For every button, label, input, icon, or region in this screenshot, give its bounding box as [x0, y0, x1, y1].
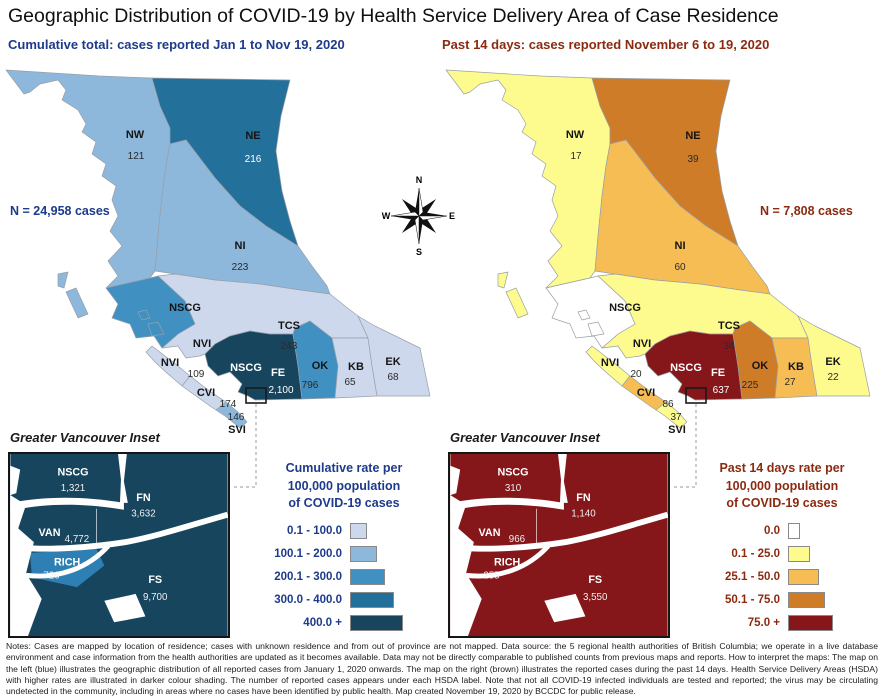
legend-swatch: [350, 523, 406, 539]
legend-swatch: [788, 523, 844, 539]
compass-rose-icon: N E S W: [381, 174, 457, 258]
legend-item-label: 50.1 - 75.0: [700, 594, 788, 606]
legend-swatch: [788, 615, 844, 631]
inset-label-van: VAN: [39, 527, 61, 539]
inset-title-past14: Greater Vancouver Inset: [450, 430, 600, 445]
legend-item: 0.1 - 25.0: [700, 547, 864, 562]
inset-label-van: VAN: [479, 527, 501, 539]
value-tcs: 34: [723, 341, 735, 352]
value-kb: 65: [344, 377, 356, 388]
legend-item-label: 75.0 +: [700, 617, 788, 629]
region-haida-gwaii: [58, 272, 88, 318]
label-nvi: NVI: [601, 357, 619, 369]
label-fe: FE: [711, 367, 725, 379]
label-nscg: NSCG: [230, 362, 262, 374]
label-ok: OK: [752, 360, 769, 372]
legend-item-label: 300.0 - 400.0: [262, 594, 350, 606]
page: Geographic Distribution of COVID-19 by H…: [0, 0, 884, 696]
legend-swatch: [350, 569, 406, 585]
legend-item-label: 0.1 - 100.0: [262, 525, 350, 537]
label-ni: NI: [235, 240, 246, 252]
inset-label-fn: FN: [136, 492, 151, 504]
inset-label-fs: FS: [588, 574, 602, 586]
legend-title: Cumulative rate per 100,000 population o…: [277, 460, 411, 513]
inset-value-fn: 3,632: [131, 509, 155, 520]
value-fe: 637: [713, 385, 730, 396]
value-svi: 146: [228, 412, 245, 423]
legend-item: 100.1 - 200.0: [262, 547, 426, 562]
footnotes: Notes: Cases are mapped by location of r…: [6, 641, 878, 696]
label-nvi-mainland: NVI: [193, 338, 211, 350]
label-nscg-coastal: NSCG: [169, 302, 201, 314]
legend-cumulative: Cumulative rate per 100,000 population o…: [262, 460, 426, 639]
legend-past14: Past 14 days rate per 100,000 population…: [700, 460, 864, 639]
value-nw: 121: [128, 151, 145, 162]
label-nw: NW: [126, 129, 145, 141]
legend-item: 200.1 - 300.0: [262, 570, 426, 585]
inset-label-fs: FS: [148, 574, 162, 586]
inset-value-fs: 9,700: [143, 592, 168, 603]
compass-west-label: W: [382, 211, 391, 221]
legend-title-line: of COVID-19 cases: [277, 495, 411, 513]
legend-item: 0.1 - 100.0: [262, 524, 426, 539]
inset-value-van: 966: [509, 534, 525, 545]
inset-map-past14: NSCG 310 FN 1,140 VAN 966 RICH 255 FS 3,…: [448, 452, 670, 638]
region-haida-gwaii: [498, 272, 528, 318]
legend-title-line: Cumulative rate per: [277, 460, 411, 478]
label-ne: NE: [685, 130, 700, 142]
label-ek: EK: [385, 356, 400, 368]
label-nvi-mainland: NVI: [633, 338, 651, 350]
inset-value-van: 4,772: [65, 534, 89, 545]
label-tcs: TCS: [278, 320, 300, 332]
value-ok: 225: [742, 380, 759, 391]
value-cvi: 174: [220, 399, 237, 410]
inset-title-cumulative: Greater Vancouver Inset: [10, 430, 160, 445]
legend-title-line: of COVID-19 cases: [715, 495, 849, 513]
value-ok: 796: [302, 380, 319, 391]
label-kb: KB: [348, 361, 364, 373]
inset-map-cumulative: NSCG 1,321 FN 3,632 VAN 4,772 RICH 726 F…: [8, 452, 230, 638]
legend-title-line: 100,000 population: [715, 478, 849, 496]
compass-south-label: S: [416, 247, 422, 257]
value-svi: 37: [670, 412, 682, 423]
compass-north-label: N: [416, 175, 423, 185]
label-nw: NW: [566, 129, 585, 141]
value-ne: 39: [687, 154, 699, 165]
label-ni: NI: [675, 240, 686, 252]
page-title: Geographic Distribution of COVID-19 by H…: [8, 5, 779, 28]
region-nw: [446, 70, 610, 288]
inset-label-fn: FN: [576, 492, 591, 504]
legend-item: 400.0 +: [262, 616, 426, 631]
label-fe: FE: [271, 367, 285, 379]
value-nvi: 109: [188, 369, 205, 380]
value-ek: 22: [827, 372, 839, 383]
legend-item-label: 400.0 +: [262, 617, 350, 629]
legend-item-label: 0.0: [700, 525, 788, 537]
label-ok: OK: [312, 360, 329, 372]
legend-item: 0.0: [700, 524, 864, 539]
legend-swatch: [788, 569, 844, 585]
value-ek: 68: [387, 372, 399, 383]
label-cvi: CVI: [637, 387, 655, 399]
region-nw: [6, 70, 170, 288]
label-nscg-coastal: NSCG: [609, 302, 641, 314]
legend-title: Past 14 days rate per 100,000 population…: [715, 460, 849, 513]
legend-swatch: [350, 615, 406, 631]
value-ni: 223: [232, 262, 249, 273]
inset-label-rich: RICH: [494, 557, 521, 569]
label-nscg: NSCG: [670, 362, 702, 374]
label-ek: EK: [825, 356, 840, 368]
value-fe: 2,100: [268, 385, 293, 396]
value-ne: 216: [245, 154, 262, 165]
label-nvi: NVI: [161, 357, 179, 369]
value-nvi: 20: [630, 369, 642, 380]
value-tcs: 243: [281, 341, 298, 352]
inset-value-nscg: 1,321: [61, 483, 85, 494]
legend-swatch: [788, 592, 844, 608]
legend-swatch: [350, 592, 406, 608]
value-kb: 27: [784, 377, 796, 388]
inset-value-fn: 1,140: [571, 509, 596, 520]
legend-item: 50.1 - 75.0: [700, 593, 864, 608]
value-ni: 60: [674, 262, 686, 273]
inset-label-rich: RICH: [54, 557, 81, 569]
legend-item: 25.1 - 50.0: [700, 570, 864, 585]
label-svi: SVI: [668, 424, 686, 436]
legend-item-label: 100.1 - 200.0: [262, 548, 350, 560]
compass-east-label: E: [449, 211, 455, 221]
legend-item-label: 200.1 - 300.0: [262, 571, 350, 583]
legend-item: 75.0 +: [700, 616, 864, 631]
legend-title-line: Past 14 days rate per: [715, 460, 849, 478]
value-cvi: 86: [662, 399, 674, 410]
label-tcs: TCS: [718, 320, 740, 332]
subtitle-past14: Past 14 days: cases reported November 6 …: [442, 37, 769, 52]
inset-value-fs: 3,550: [583, 592, 608, 603]
label-svi: SVI: [228, 424, 246, 436]
inset-label-nscg: NSCG: [57, 467, 88, 479]
inset-value-nscg: 310: [505, 483, 522, 494]
legend-item-label: 0.1 - 25.0: [700, 548, 788, 560]
value-nw: 17: [570, 151, 582, 162]
inset-value-rich: 255: [483, 570, 500, 581]
inset-label-nscg: NSCG: [497, 467, 528, 479]
legend-swatch: [788, 546, 844, 562]
inset-value-rich: 726: [43, 570, 59, 581]
legend-item: 300.0 - 400.0: [262, 593, 426, 608]
legend-title-line: 100,000 population: [277, 478, 411, 496]
label-ne: NE: [245, 130, 260, 142]
label-cvi: CVI: [197, 387, 215, 399]
legend-swatch: [350, 546, 406, 562]
legend-item-label: 25.1 - 50.0: [700, 571, 788, 583]
subtitle-cumulative: Cumulative total: cases reported Jan 1 t…: [8, 37, 345, 52]
label-kb: KB: [788, 361, 804, 373]
